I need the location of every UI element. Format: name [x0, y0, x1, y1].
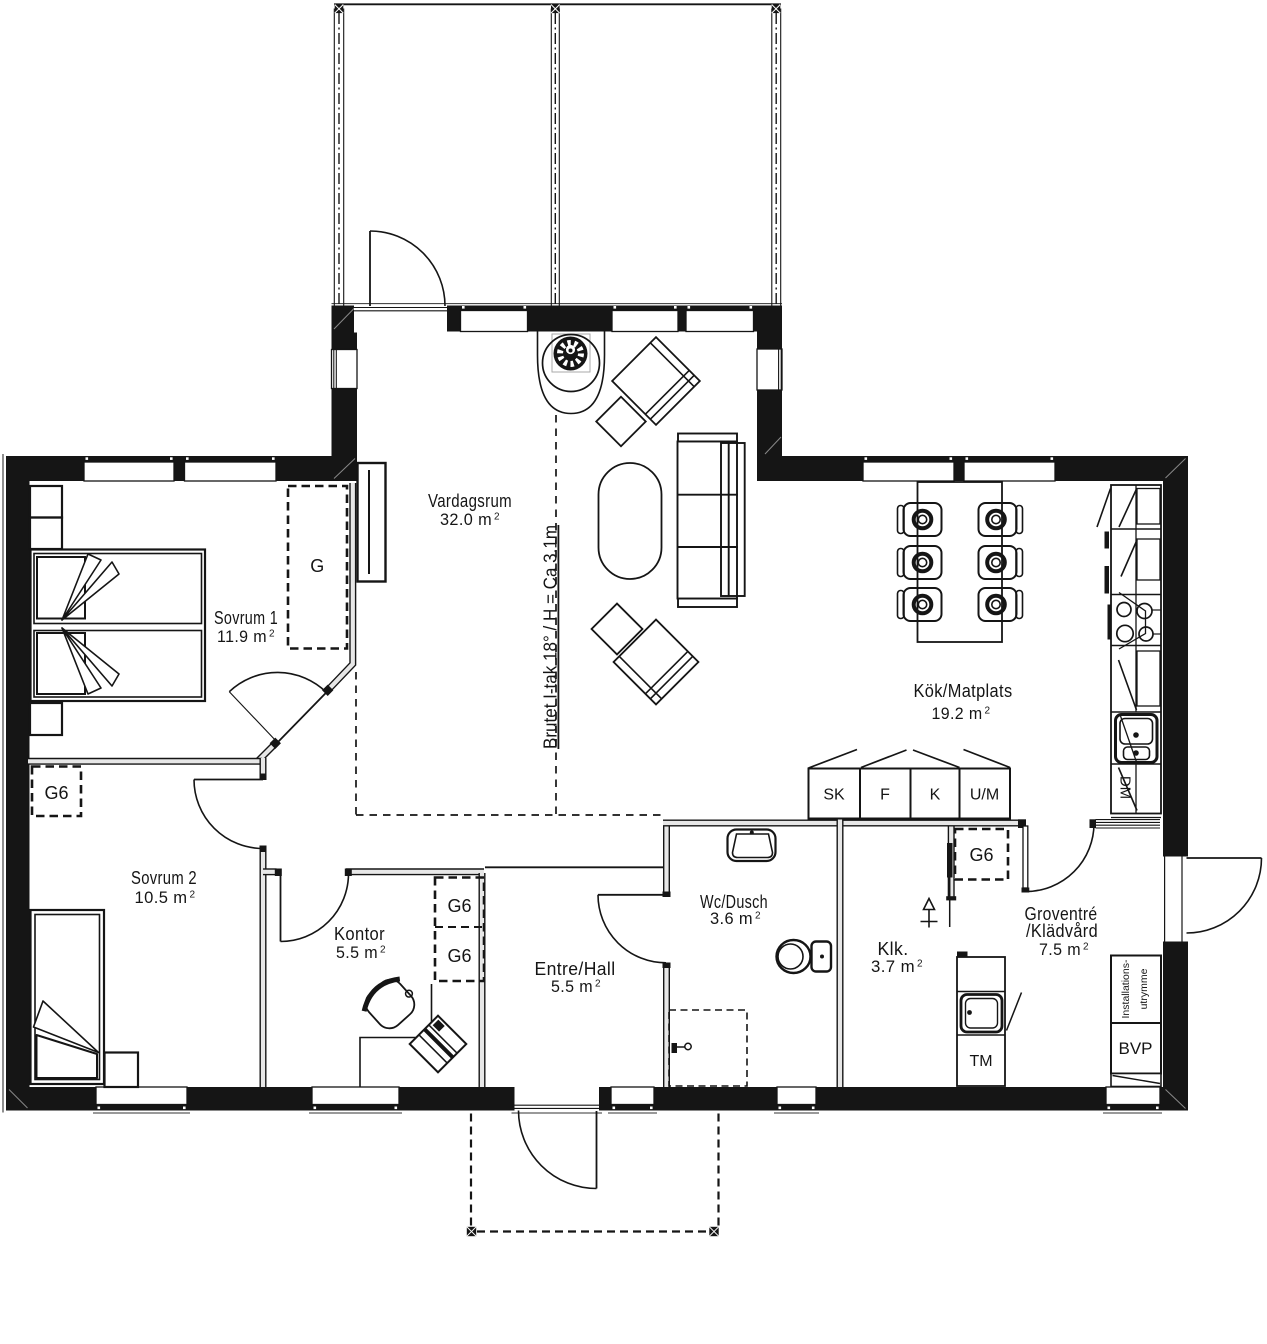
svg-text:2: 2 [985, 706, 991, 717]
svg-text:SK: SK [823, 787, 845, 804]
svg-text:DM: DM [1117, 776, 1134, 799]
svg-text:19.2 m: 19.2 m [932, 704, 983, 723]
svg-text:2: 2 [917, 959, 923, 970]
svg-text:U/M: U/M [970, 787, 999, 804]
svg-text:Vardagsrum: Vardagsrum [428, 491, 512, 511]
svg-text:BVP: BVP [1118, 1039, 1152, 1058]
svg-text:7.5 m: 7.5 m [1039, 940, 1081, 959]
svg-text:Installations-: Installations- [1120, 959, 1132, 1018]
svg-text:2: 2 [755, 911, 761, 922]
svg-text:G6: G6 [44, 783, 68, 803]
svg-text:32.0 m: 32.0 m [440, 510, 492, 529]
svg-text:3.6 m: 3.6 m [710, 909, 753, 928]
svg-text:G: G [310, 556, 324, 576]
svg-text:Brutet I-tak 18° / H = Ca 3.1m: Brutet I-tak 18° / H = Ca 3.1m [541, 525, 561, 749]
svg-text:K: K [930, 787, 941, 804]
svg-text:2: 2 [494, 512, 500, 523]
svg-text:2: 2 [190, 890, 196, 901]
svg-text:10.5 m: 10.5 m [135, 888, 188, 907]
svg-text:Entre/Hall: Entre/Hall [535, 959, 616, 979]
svg-text:G6: G6 [447, 896, 471, 916]
svg-text:Kontor: Kontor [334, 924, 385, 944]
svg-text:G6: G6 [447, 946, 471, 966]
svg-text:Sovrum 1: Sovrum 1 [214, 608, 278, 628]
svg-text:TM: TM [969, 1053, 992, 1070]
svg-text:5.5 m: 5.5 m [336, 943, 378, 962]
svg-text:utrymme: utrymme [1138, 968, 1150, 1009]
svg-text:11.9 m: 11.9 m [217, 627, 267, 646]
svg-text:2: 2 [380, 945, 386, 956]
svg-text:5.5 m: 5.5 m [551, 977, 593, 996]
svg-text:2: 2 [1083, 942, 1089, 953]
svg-text:2: 2 [595, 979, 601, 990]
svg-text:3.7 m: 3.7 m [871, 957, 915, 976]
svg-text:F: F [880, 787, 890, 804]
svg-text:Sovrum 2: Sovrum 2 [131, 868, 197, 888]
svg-text:Kök/Matplats: Kök/Matplats [914, 681, 1013, 701]
svg-text:/Klädvård: /Klädvård [1026, 921, 1098, 941]
svg-text:2: 2 [269, 629, 275, 640]
svg-text:Klk.: Klk. [878, 939, 909, 959]
svg-text:G6: G6 [969, 845, 993, 865]
